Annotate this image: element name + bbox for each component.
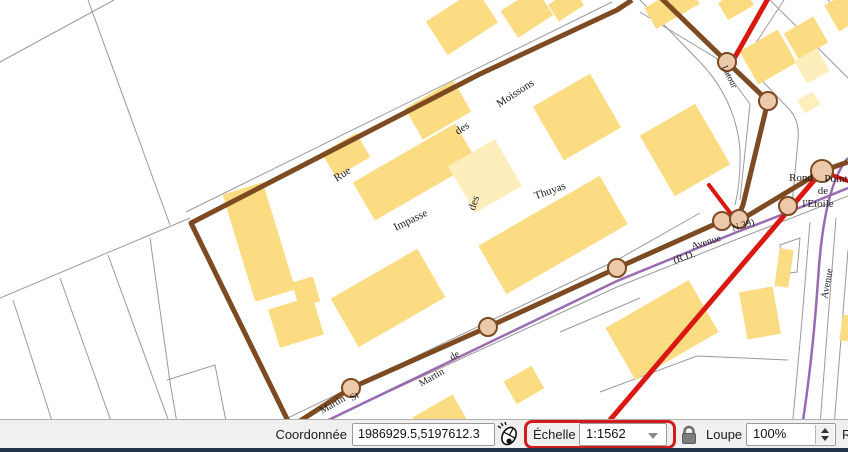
magnifier-label: Loupe: [706, 427, 742, 442]
scale-value: 1:1562: [586, 426, 626, 441]
chevron-down-icon[interactable]: [648, 433, 658, 439]
street-label: Latour: [720, 64, 740, 90]
mouse-tracking-icon[interactable]: [496, 422, 520, 448]
map-canvas[interactable]: Rue des Moissons Impasse des Thuyas Mart…: [0, 0, 848, 419]
window-bottom-edge: [0, 448, 848, 452]
spin-down-icon[interactable]: [821, 436, 829, 441]
spinner-up-down-icon[interactable]: [815, 425, 834, 444]
street-label: (R.D.: [672, 249, 696, 266]
street-label: Avenue: [819, 267, 835, 299]
scale-combobox[interactable]: 1:1562: [579, 423, 667, 446]
status-bar: Coordonnée 1986929.5,5197612.3 Échelle: [0, 419, 848, 449]
coordinate-label: Coordonnée: [270, 427, 347, 442]
place-label: Rond: [789, 172, 813, 184]
spin-up-icon[interactable]: [821, 428, 829, 433]
magnifier-value: 100%: [753, 426, 786, 441]
place-label: Point: [824, 173, 847, 185]
route-node: [713, 212, 731, 230]
route-node: [479, 318, 497, 336]
street-label: Moissons: [494, 77, 536, 110]
magnifier-spinbox[interactable]: 100%: [746, 423, 836, 446]
place-label: l'Etoile: [802, 198, 833, 210]
route-node: [608, 259, 626, 277]
lock-icon[interactable]: [678, 424, 700, 446]
route-node: [759, 92, 777, 110]
route-node: [779, 197, 797, 215]
qgis-window: Rue des Moissons Impasse des Thuyas Mart…: [0, 0, 848, 452]
street-label: Impasse: [392, 207, 430, 234]
scale-label: Échelle: [533, 427, 576, 442]
rotation-label-clipped: R: [842, 427, 848, 442]
place-label: de: [818, 185, 829, 197]
coordinate-input[interactable]: 1986929.5,5197612.3: [352, 423, 495, 446]
